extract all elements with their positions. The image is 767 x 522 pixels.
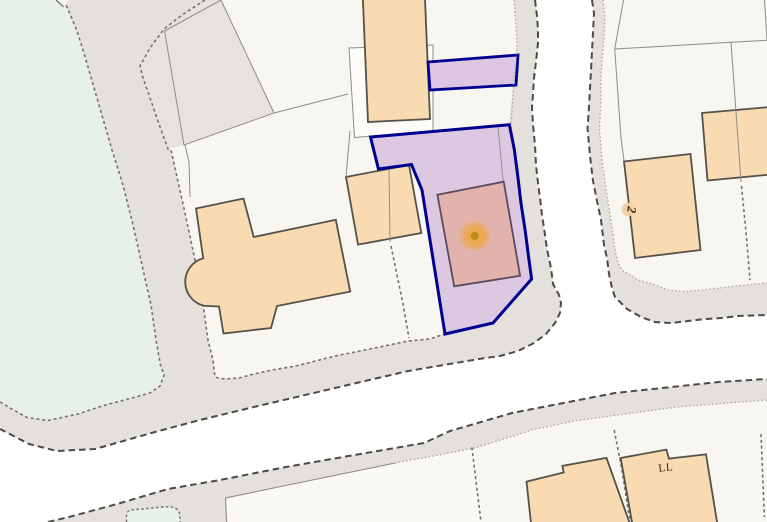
svg-text:LL: LL [658,461,674,475]
